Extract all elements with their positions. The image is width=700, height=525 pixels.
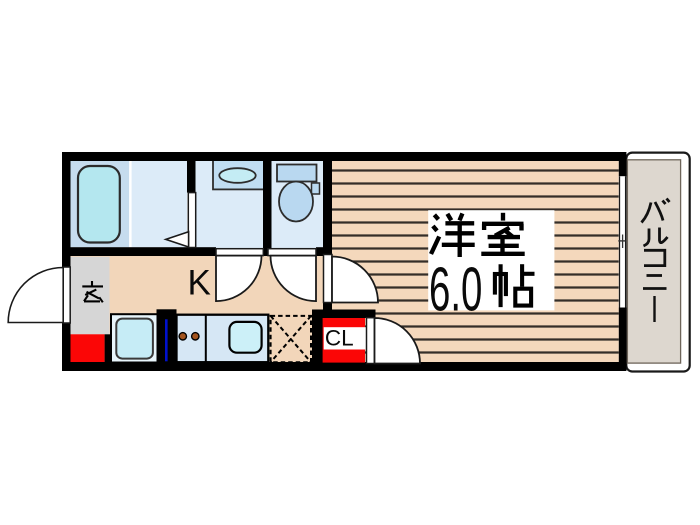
svg-text:K: K: [188, 264, 211, 303]
svg-text:6.0: 6.0: [429, 254, 482, 324]
svg-text:CL: CL: [325, 326, 354, 351]
